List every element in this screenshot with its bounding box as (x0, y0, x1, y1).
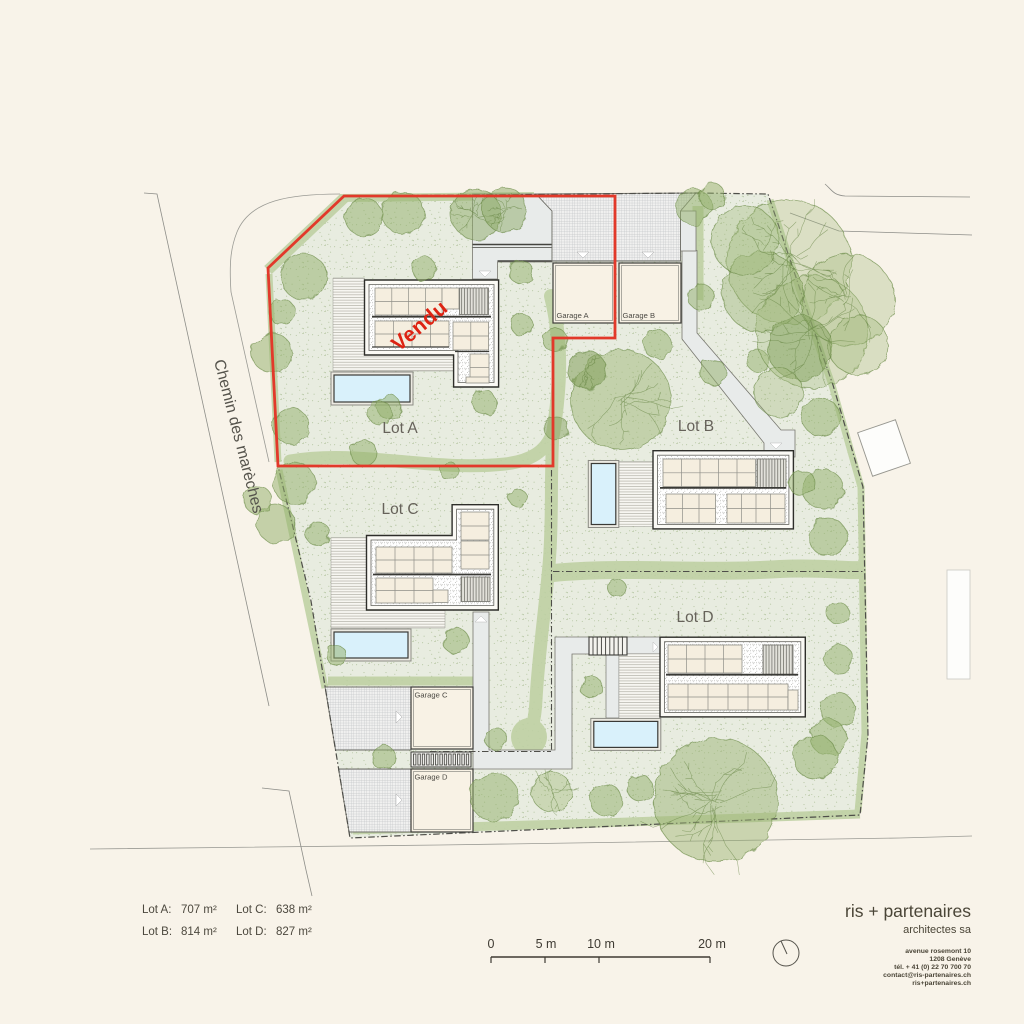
svg-text:Garage C: Garage C (415, 691, 448, 700)
svg-text:707 m²: 707 m² (181, 904, 217, 916)
svg-text:contact@ris-partenaires.ch: contact@ris-partenaires.ch (883, 972, 971, 979)
svg-text:Lot B:: Lot B: (142, 926, 172, 938)
svg-text:Lot A:: Lot A: (142, 904, 171, 916)
svg-text:638 m²: 638 m² (276, 904, 312, 916)
svg-text:avenue rosemont 10: avenue rosemont 10 (905, 948, 971, 955)
svg-text:ris+partenaires.ch: ris+partenaires.ch (912, 980, 971, 987)
svg-text:827 m²: 827 m² (276, 926, 312, 938)
svg-text:architectes sa: architectes sa (903, 924, 972, 936)
svg-text:Garage A: Garage A (557, 311, 590, 320)
svg-text:Lot D: Lot D (676, 609, 713, 626)
svg-text:Garage D: Garage D (415, 773, 448, 782)
svg-text:Lot A: Lot A (382, 420, 418, 437)
svg-text:ris + partenaires: ris + partenaires (845, 901, 971, 921)
svg-text:Lot D:: Lot D: (236, 926, 267, 938)
svg-text:Garage B: Garage B (623, 311, 656, 320)
svg-text:814 m²: 814 m² (181, 926, 217, 938)
svg-text:1208 Genève: 1208 Genève (929, 956, 971, 963)
svg-text:Lot C: Lot C (381, 501, 418, 518)
svg-text:tél. + 41 (0) 22 70 700 70: tél. + 41 (0) 22 70 700 70 (894, 964, 971, 971)
svg-text:5 m: 5 m (536, 937, 557, 951)
svg-text:Lot C:: Lot C: (236, 904, 267, 916)
svg-text:0: 0 (488, 937, 495, 951)
svg-text:20 m: 20 m (698, 937, 726, 951)
svg-text:10 m: 10 m (587, 937, 615, 951)
svg-text:Lot B: Lot B (678, 418, 714, 435)
